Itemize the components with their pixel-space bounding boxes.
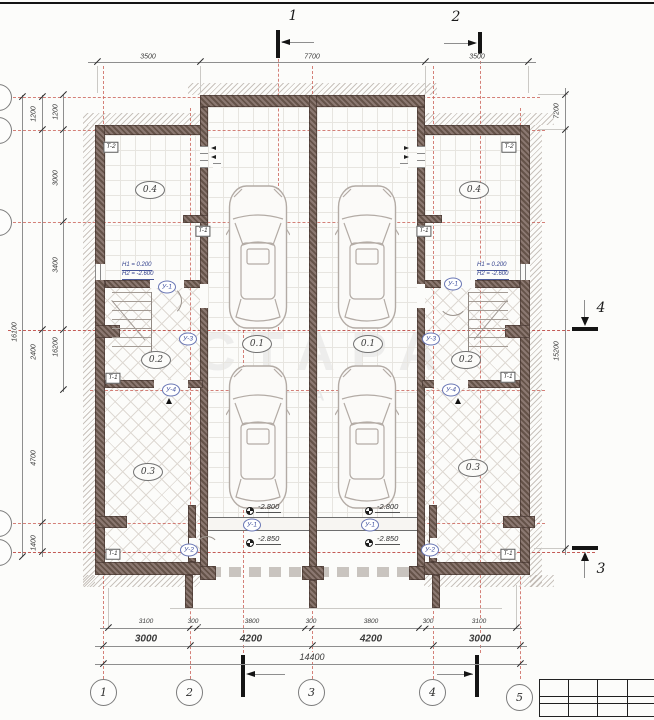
dim-text: 3500 bbox=[468, 54, 486, 61]
title-block-line bbox=[568, 679, 569, 717]
axis-row-circle bbox=[0, 510, 12, 537]
title-block-line bbox=[539, 696, 654, 697]
axis-circle-2: 2 bbox=[176, 679, 203, 706]
room-label-01-left: 0.1 bbox=[242, 335, 272, 353]
door-arc bbox=[438, 286, 468, 316]
level-value: -2.850 bbox=[256, 535, 281, 545]
dim-text: 300 bbox=[305, 619, 318, 626]
tag-t2: T-2 bbox=[501, 142, 516, 153]
room-label-03-right: 0.3 bbox=[458, 459, 488, 477]
opening-arrow-icon bbox=[404, 155, 409, 159]
dim-text: 4200 bbox=[239, 634, 263, 645]
level-value: -2.850 bbox=[375, 535, 400, 545]
stairs-direction-icon bbox=[455, 398, 461, 404]
room-label-04-right: 0.4 bbox=[459, 181, 489, 199]
dim-line-top bbox=[88, 62, 536, 63]
axis-circle-4: 4 bbox=[419, 679, 446, 706]
exterior-hatch bbox=[83, 575, 200, 587]
extension-line bbox=[200, 66, 201, 93]
door-opening bbox=[200, 284, 208, 308]
dim-text: 7200 bbox=[554, 102, 561, 120]
dim-text: 7700 bbox=[303, 54, 321, 61]
title-block-line bbox=[597, 679, 598, 717]
lintel-label-u4: У-4 bbox=[162, 384, 180, 397]
extension-line bbox=[97, 66, 98, 93]
car-icon bbox=[226, 183, 290, 331]
wall-pilaster bbox=[503, 516, 535, 528]
axis-circle-5: 5 bbox=[506, 684, 533, 711]
dim-text: 3800 bbox=[363, 619, 379, 626]
section-label-1: 1 bbox=[289, 8, 298, 24]
dim-text: 1200 bbox=[31, 105, 38, 123]
vent-opening bbox=[200, 146, 208, 168]
wall bbox=[200, 107, 208, 568]
wall bbox=[424, 562, 530, 575]
tag-t1: T-1 bbox=[105, 549, 120, 560]
title-block-line bbox=[627, 679, 628, 717]
opening-arrow-icon bbox=[211, 155, 216, 159]
wall bbox=[95, 562, 201, 575]
section-bar bbox=[241, 655, 245, 697]
axis-circle-3: 3 bbox=[298, 679, 325, 706]
car-icon bbox=[226, 363, 290, 511]
tag-t1: T-1 bbox=[500, 549, 515, 560]
lintel-label-u1: У-1 bbox=[444, 278, 462, 291]
extension-line bbox=[516, 585, 517, 628]
dim-text: 3000 bbox=[468, 634, 492, 645]
dim-line-left-1 bbox=[22, 95, 23, 557]
lintel-label-u1: У-1 bbox=[158, 281, 176, 294]
dim-text: 300 bbox=[187, 619, 200, 626]
lintel-label-u2: У-2 bbox=[421, 544, 439, 557]
tag-t1: T-1 bbox=[500, 372, 515, 383]
page-top-rule bbox=[0, 2, 654, 4]
dim-text: 16100 bbox=[12, 321, 19, 342]
wall-pilaster bbox=[505, 325, 530, 338]
section-bar bbox=[572, 327, 598, 331]
ramp-wall bbox=[185, 575, 193, 608]
section-arrow-icon bbox=[581, 317, 589, 326]
lintel-label-u3: У-3 bbox=[179, 333, 197, 346]
axis-line-horizontal bbox=[90, 390, 545, 391]
ramp-apron-line bbox=[170, 608, 502, 609]
level-value: -2.800 bbox=[256, 503, 281, 513]
section-bar bbox=[276, 30, 280, 58]
section-label-2: 2 bbox=[452, 9, 461, 25]
wall bbox=[302, 566, 324, 580]
dim-line-left-3 bbox=[63, 95, 64, 392]
exterior-hatch bbox=[83, 125, 95, 587]
room-label-03-left: 0.3 bbox=[133, 463, 163, 481]
wall-party bbox=[309, 95, 317, 568]
tag-t2: T-2 bbox=[103, 142, 118, 153]
extension-line bbox=[528, 66, 529, 93]
car-icon bbox=[335, 363, 399, 511]
title-block-line bbox=[539, 703, 654, 704]
dim-tick bbox=[60, 386, 67, 393]
window-opening bbox=[520, 264, 530, 280]
dim-text: 3000 bbox=[53, 169, 60, 187]
dim-text: 3400 bbox=[53, 256, 60, 274]
tag-t1: T-1 bbox=[195, 226, 210, 237]
exterior-hatch bbox=[424, 113, 554, 125]
note-h2: H2 = -2.600 bbox=[122, 271, 154, 280]
section-arrow-icon bbox=[246, 671, 255, 677]
level-symbol-icon bbox=[365, 539, 373, 547]
dim-text: 300 bbox=[422, 619, 435, 626]
dim-text: 16200 bbox=[53, 336, 60, 357]
section-arrow-icon bbox=[468, 40, 477, 46]
floor-room04-left bbox=[105, 135, 200, 280]
level-value: -2.800 bbox=[375, 503, 400, 513]
dim-text: 1200 bbox=[53, 103, 60, 121]
floor-plan-canvas: СТАРА S T A R A bbox=[0, 0, 654, 720]
window-opening bbox=[95, 264, 105, 280]
lintel-label-u2: У-2 bbox=[180, 544, 198, 557]
section-arrow-icon bbox=[581, 552, 589, 561]
section-label-4: 4 bbox=[597, 300, 606, 316]
exterior-hatch bbox=[424, 575, 554, 587]
extension-line bbox=[425, 66, 426, 93]
dim-text: 15200 bbox=[554, 340, 561, 361]
dim-text: 3800 bbox=[244, 619, 260, 626]
wall bbox=[409, 566, 425, 580]
door-arc bbox=[195, 536, 219, 560]
lintel-label-u3: У-3 bbox=[422, 333, 440, 346]
ramp-marking-right bbox=[317, 567, 417, 577]
dim-text: 1400 bbox=[31, 534, 38, 552]
vent-opening bbox=[417, 146, 425, 168]
axis-row-circle bbox=[0, 539, 12, 566]
level-symbol-icon bbox=[246, 539, 254, 547]
level-symbol-icon bbox=[365, 507, 373, 515]
level-symbol-icon bbox=[246, 507, 254, 515]
exterior-hatch bbox=[83, 113, 200, 125]
axis-row-circle bbox=[0, 84, 12, 111]
wall-stub bbox=[417, 215, 442, 223]
section-label-3: 3 bbox=[597, 561, 606, 577]
tag-t1: T-1 bbox=[105, 373, 120, 384]
note-h1: H1 = 0.200 bbox=[122, 262, 152, 271]
section-bar bbox=[572, 546, 598, 550]
room-label-02-left: 0.2 bbox=[141, 351, 171, 369]
ramp-wall bbox=[309, 580, 317, 608]
wall bbox=[95, 125, 201, 135]
floor-room04-right bbox=[425, 135, 520, 280]
room-label-02-right: 0.2 bbox=[451, 351, 481, 369]
tag-t1: T-1 bbox=[416, 226, 431, 237]
opening-note-lines bbox=[213, 163, 221, 170]
wall-stub bbox=[183, 215, 208, 223]
door-opening bbox=[417, 284, 425, 308]
axis-circle-1: 1 bbox=[90, 679, 117, 706]
wall bbox=[520, 125, 530, 575]
dim-text: 3100 bbox=[138, 619, 154, 626]
dim-text: 3000 bbox=[134, 634, 158, 645]
section-arrow-icon bbox=[464, 671, 473, 677]
car-icon bbox=[335, 183, 399, 331]
opening-note-lines bbox=[400, 163, 408, 170]
wall bbox=[200, 566, 216, 580]
stairs-left bbox=[112, 292, 152, 352]
dim-text-total: 14400 bbox=[298, 652, 325, 662]
extension-line bbox=[108, 588, 109, 628]
note-h1: H1 = 0.200 bbox=[477, 262, 507, 271]
section-arrow-icon bbox=[281, 39, 290, 45]
dim-line-left-2 bbox=[42, 95, 43, 557]
wall-pilaster bbox=[95, 516, 127, 528]
dim-text: 2400 bbox=[31, 343, 38, 361]
dim-line-bottom-3 bbox=[95, 664, 527, 665]
dim-text: 3100 bbox=[471, 619, 487, 626]
lintel-label-u1: У-1 bbox=[361, 519, 379, 532]
dim-text: 3500 bbox=[139, 54, 157, 61]
lintel-label-u4: У-4 bbox=[442, 384, 460, 397]
ramp-wall bbox=[432, 575, 440, 608]
axis-row-circle bbox=[0, 209, 12, 236]
dim-line-right bbox=[565, 88, 566, 555]
room-label-01-right: 0.1 bbox=[353, 335, 383, 353]
stairs-direction-icon bbox=[166, 398, 172, 404]
dim-tick bbox=[19, 553, 26, 560]
wall bbox=[424, 125, 530, 135]
lintel-label-u1: У-1 bbox=[243, 519, 261, 532]
note-h2: H2 = -2.600 bbox=[477, 271, 509, 280]
dim-text: 4700 bbox=[31, 449, 38, 467]
opening-arrow-icon bbox=[211, 146, 216, 150]
section-bar bbox=[475, 655, 479, 697]
axis-row-circle bbox=[0, 117, 12, 144]
dim-text: 4200 bbox=[359, 634, 383, 645]
room-label-04-left: 0.4 bbox=[135, 181, 165, 199]
wall bbox=[95, 125, 105, 575]
opening-arrow-icon bbox=[404, 146, 409, 150]
ramp-marking-left bbox=[209, 567, 309, 577]
